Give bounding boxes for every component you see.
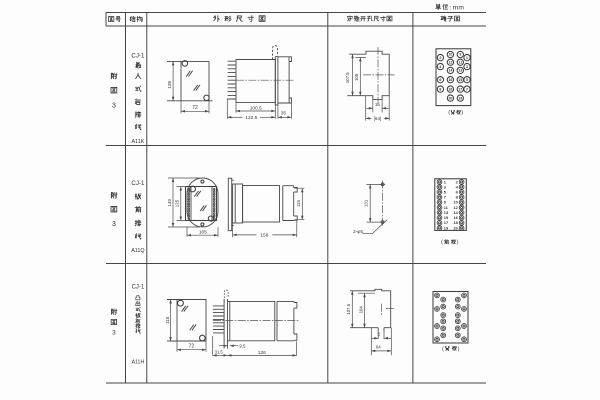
svg-text:100.5: 100.5 xyxy=(250,105,262,111)
svg-text:9.5: 9.5 xyxy=(239,343,246,348)
svg-text:[64]: [64] xyxy=(374,116,381,121)
svg-text:A11Q: A11Q xyxy=(131,248,144,254)
svg-text:): ) xyxy=(457,240,459,246)
svg-text:156: 156 xyxy=(260,233,268,239)
svg-text:A11H: A11H xyxy=(132,359,145,365)
svg-text:(: ( xyxy=(448,110,450,116)
svg-text:2: 2 xyxy=(439,56,441,60)
svg-text:115: 115 xyxy=(165,316,170,324)
svg-text:3: 3 xyxy=(112,102,116,109)
svg-text:105: 105 xyxy=(199,230,207,236)
svg-text:CJ-1: CJ-1 xyxy=(132,284,145,290)
svg-text:10: 10 xyxy=(448,53,452,57)
svg-text:3: 3 xyxy=(112,330,116,337)
svg-text:3: 3 xyxy=(466,65,468,69)
svg-text:104: 104 xyxy=(358,306,363,314)
svg-text:A11K: A11K xyxy=(132,139,145,145)
svg-text::: : xyxy=(450,4,452,11)
svg-text:125: 125 xyxy=(175,199,180,207)
svg-text:(: ( xyxy=(442,346,444,352)
svg-text:115: 115 xyxy=(296,200,301,208)
svg-text:64: 64 xyxy=(376,345,381,350)
svg-text:20: 20 xyxy=(453,225,457,230)
svg-text:31.5: 31.5 xyxy=(215,349,224,354)
svg-text:4: 4 xyxy=(439,65,441,69)
svg-text:19: 19 xyxy=(458,96,462,100)
svg-text:): ) xyxy=(461,110,463,116)
svg-text:3: 3 xyxy=(112,221,116,228)
svg-text:8: 8 xyxy=(439,87,441,91)
svg-text:72: 72 xyxy=(189,344,195,350)
svg-text:20: 20 xyxy=(448,96,452,100)
svg-text:9: 9 xyxy=(459,53,461,57)
svg-text:7: 7 xyxy=(466,87,468,91)
svg-text:126: 126 xyxy=(258,350,266,356)
svg-text:16: 16 xyxy=(377,332,381,336)
svg-text:14: 14 xyxy=(448,69,452,73)
svg-text:17: 17 xyxy=(458,87,462,91)
svg-text:11: 11 xyxy=(458,60,462,64)
svg-text:1: 1 xyxy=(466,56,468,60)
svg-text:107.5: 107.5 xyxy=(345,72,350,84)
svg-text:72: 72 xyxy=(192,105,198,111)
svg-text:122.5: 122.5 xyxy=(245,115,257,121)
svg-text:12: 12 xyxy=(448,60,452,64)
svg-text:35: 35 xyxy=(281,110,287,116)
svg-text:105: 105 xyxy=(354,73,359,81)
svg-text:15: 15 xyxy=(458,78,462,82)
svg-text:): ) xyxy=(458,346,460,352)
svg-text:CJ-1: CJ-1 xyxy=(131,53,145,60)
svg-text:6: 6 xyxy=(439,78,441,82)
svg-text:107.5: 107.5 xyxy=(346,303,351,314)
svg-text:5: 5 xyxy=(466,78,468,82)
svg-text:13: 13 xyxy=(458,69,462,73)
svg-text:2-φ5: 2-φ5 xyxy=(353,229,363,235)
svg-text:(: ( xyxy=(441,240,443,246)
svg-text:18: 18 xyxy=(448,87,452,91)
svg-text:mm: mm xyxy=(453,4,465,11)
svg-text:149: 149 xyxy=(167,199,172,207)
svg-text:131: 131 xyxy=(363,199,368,207)
svg-text:16: 16 xyxy=(448,78,452,82)
svg-text:CJ-1: CJ-1 xyxy=(131,180,145,187)
svg-text:135: 135 xyxy=(167,80,173,88)
